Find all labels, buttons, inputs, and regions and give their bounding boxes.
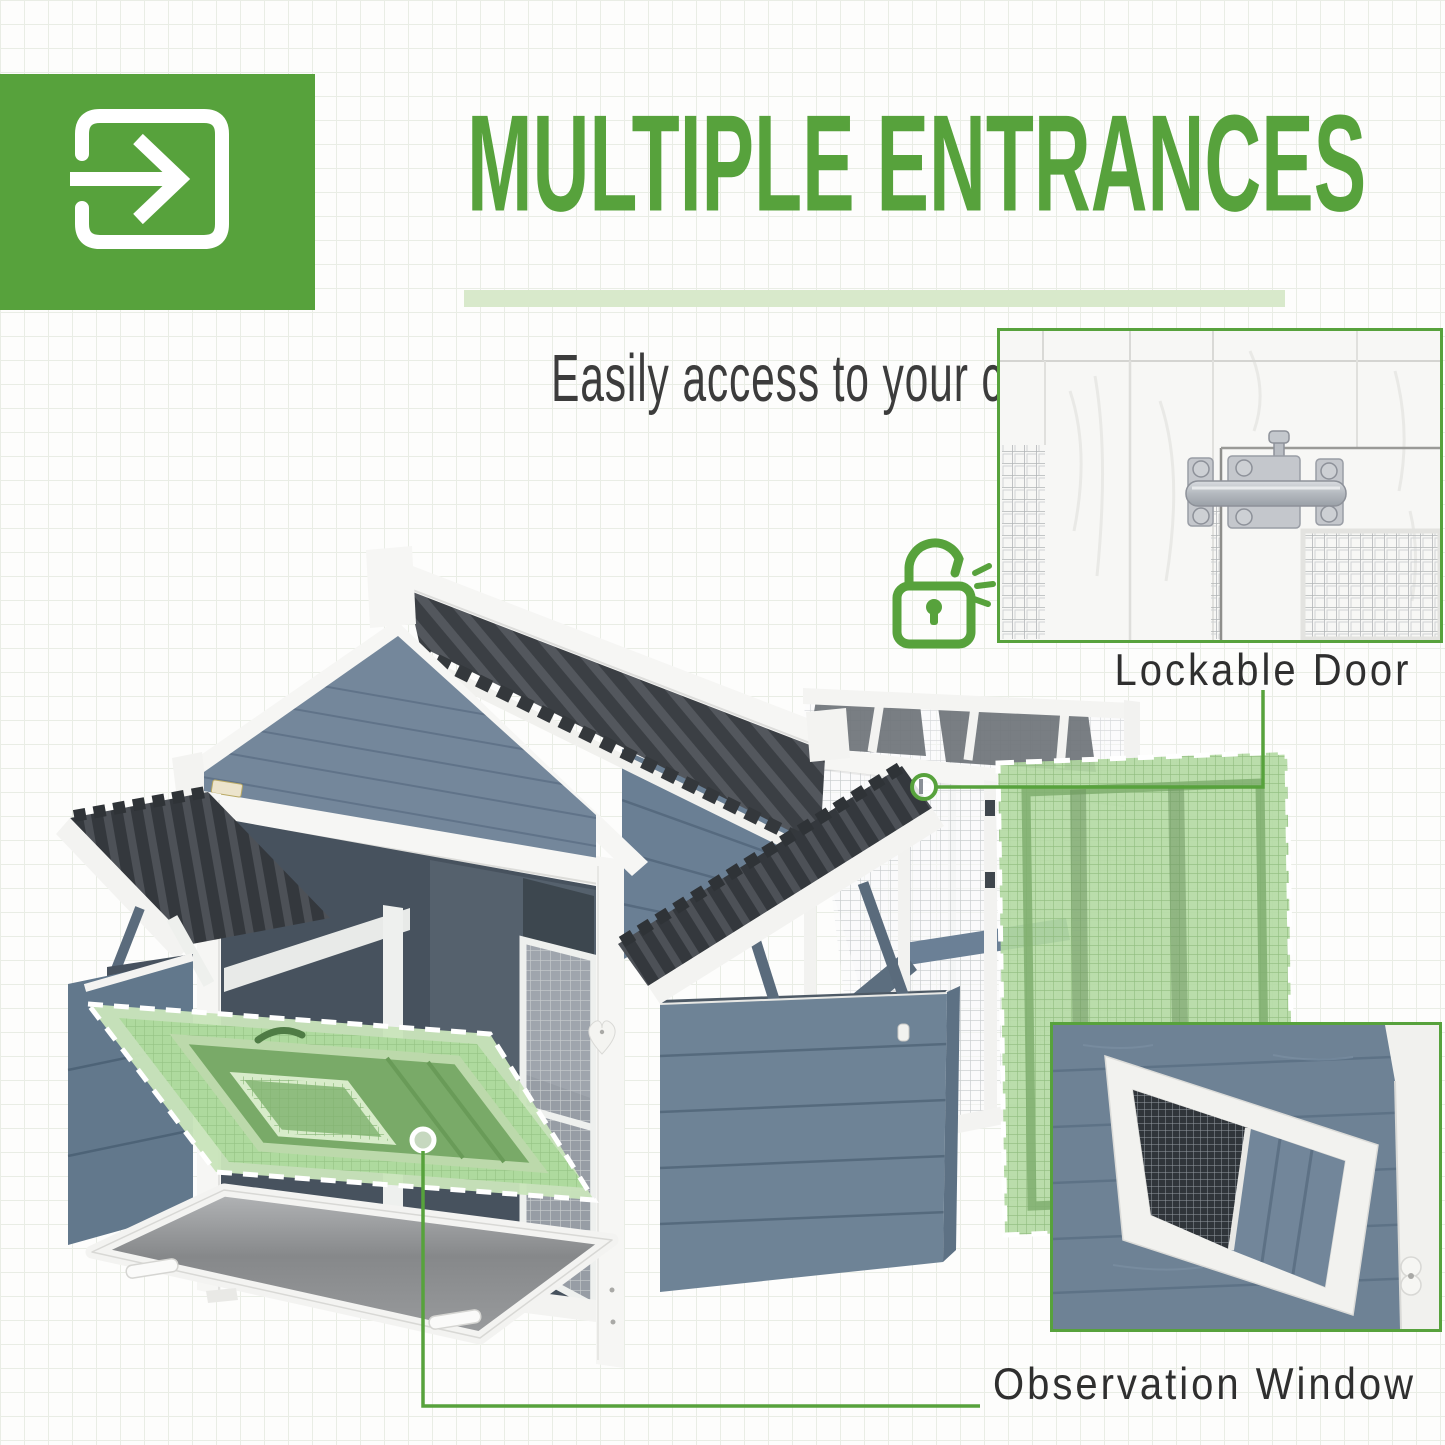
roof-finial — [366, 546, 416, 628]
observation-window-label: Observation Window — [993, 1360, 1416, 1410]
lockable-door-label: Lockable Door — [1115, 646, 1412, 696]
observation-window-inset-image — [1053, 1025, 1439, 1329]
lockable-door-inset-image — [1000, 331, 1440, 640]
observation-point-dot — [412, 1129, 434, 1151]
infographic-page: MULTIPLE ENTRANCES Easily access to your… — [0, 0, 1445, 1445]
open-padlock-icon — [897, 543, 993, 644]
observation-window-inset — [1050, 1022, 1442, 1332]
lockable-door-inset — [997, 328, 1443, 643]
latch-highlight-circle — [912, 775, 936, 799]
